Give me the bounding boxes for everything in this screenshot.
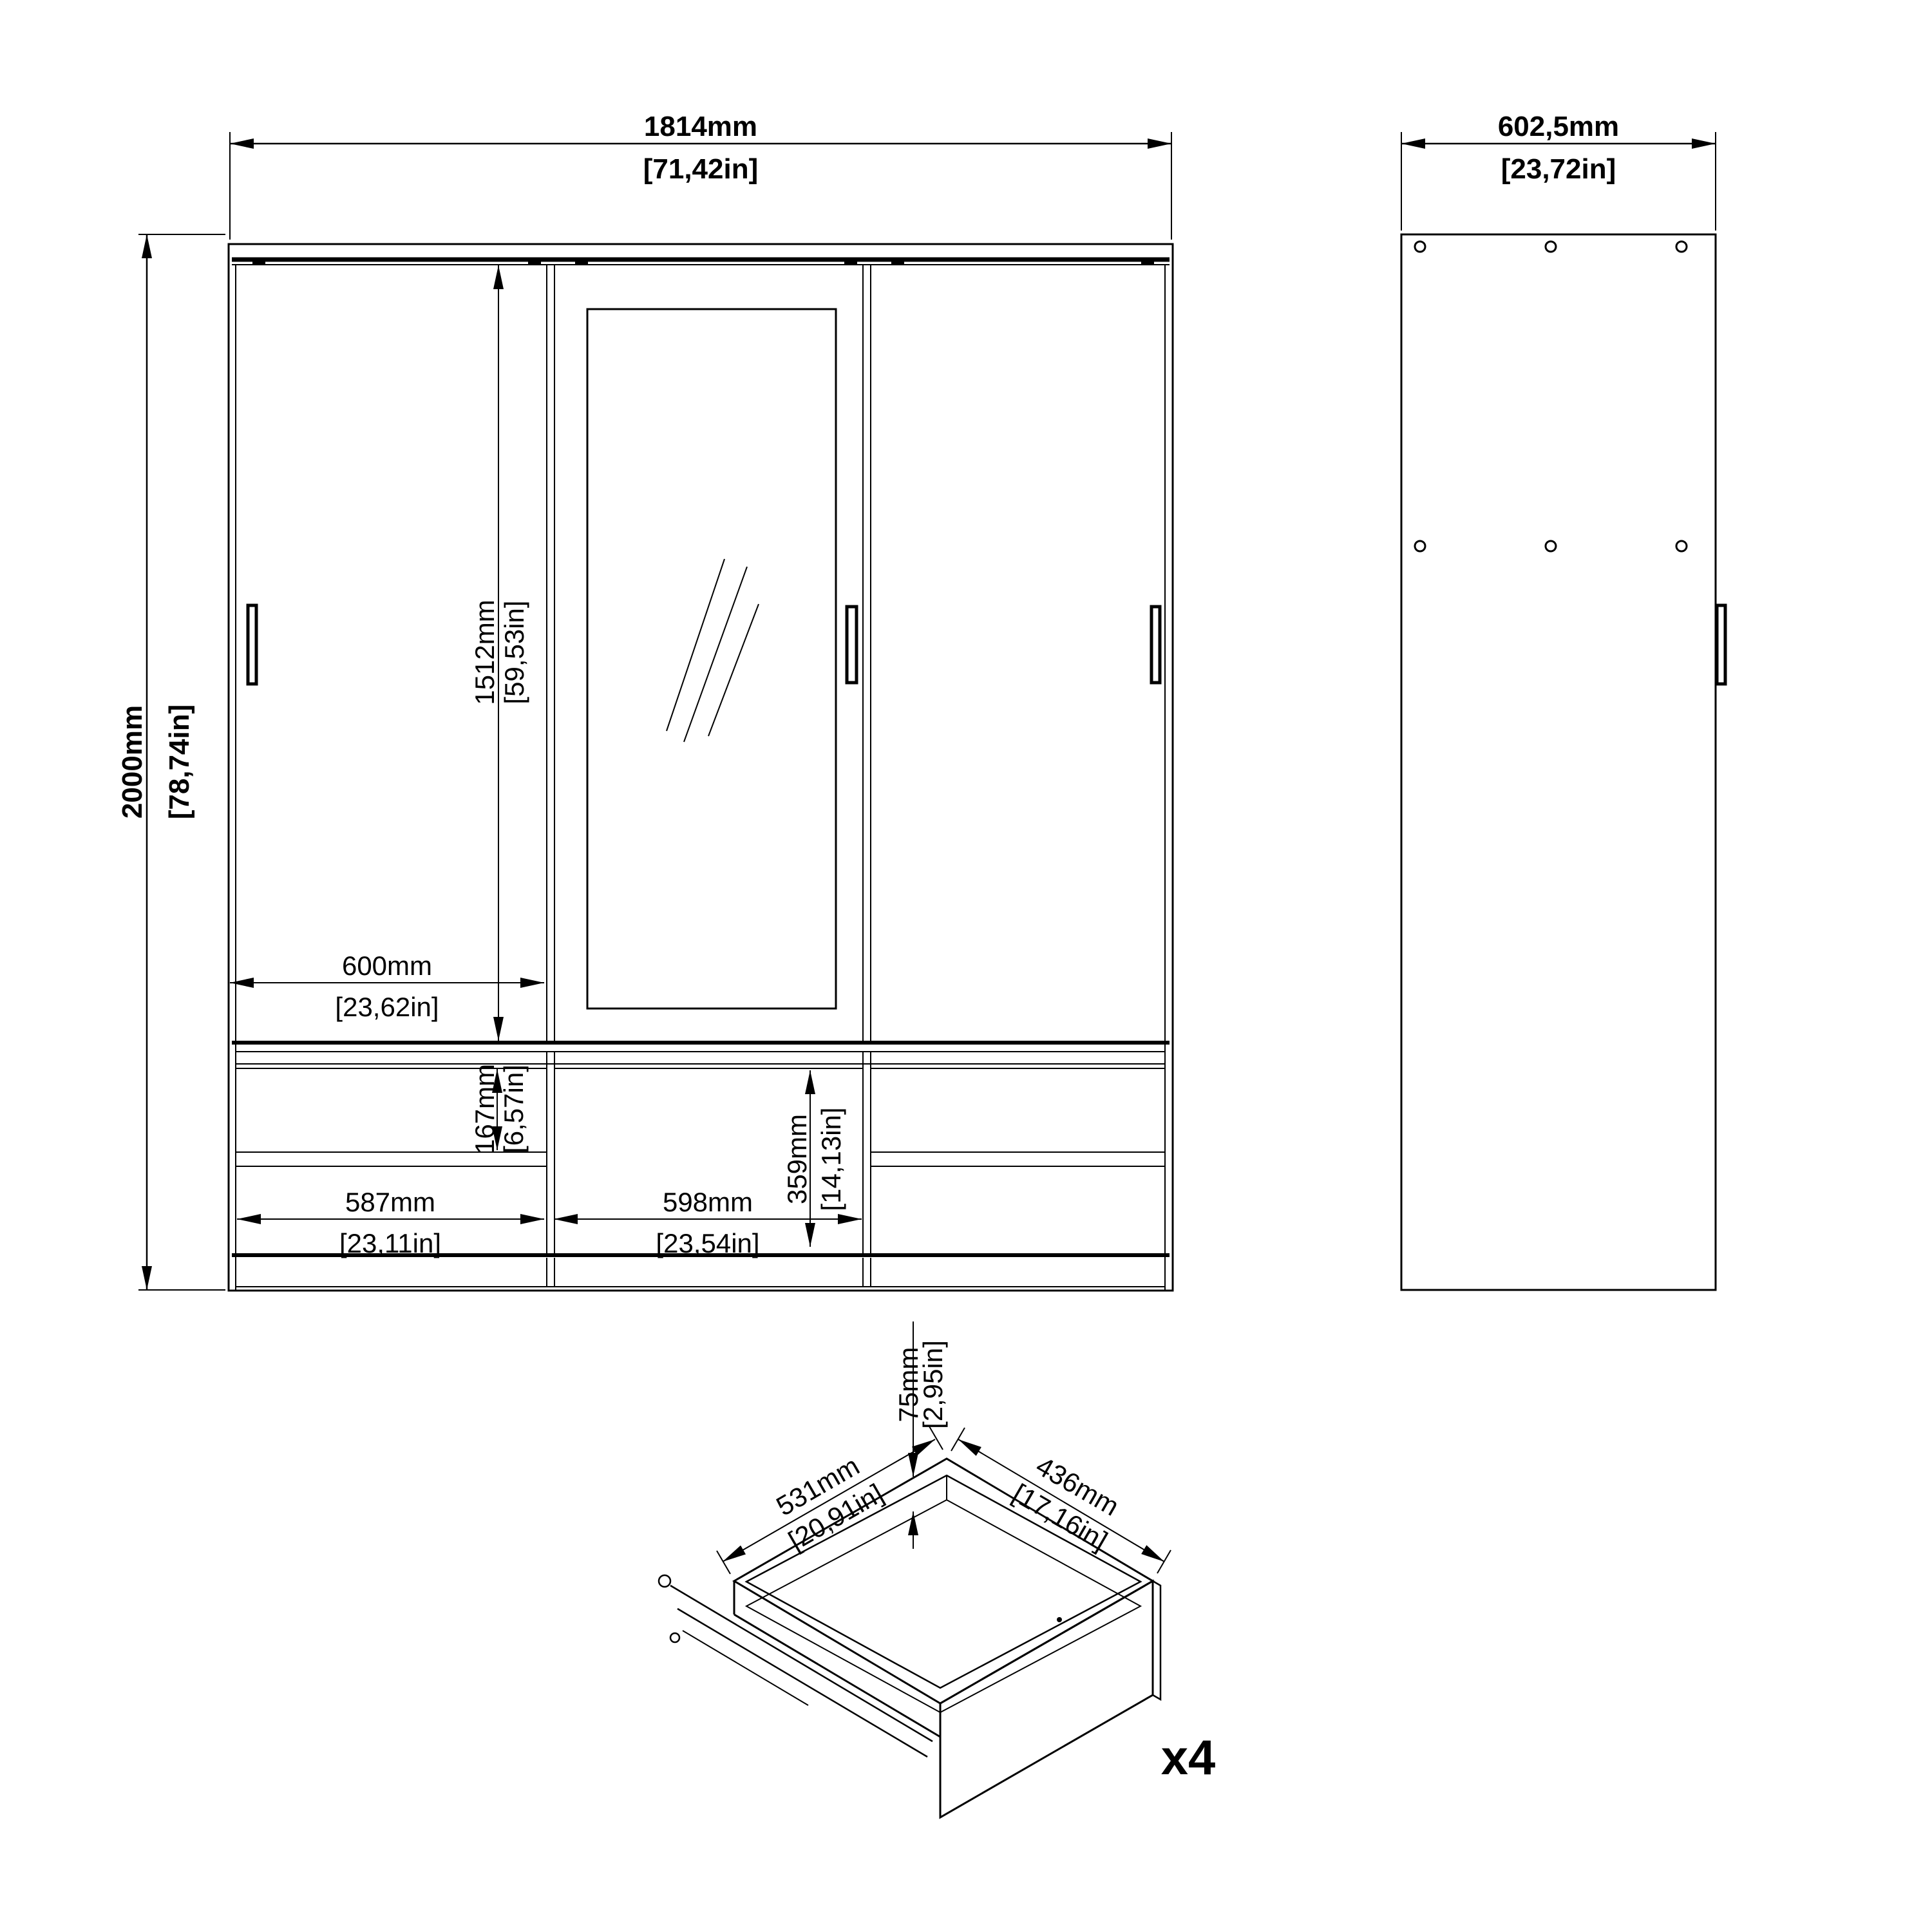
overall-width-mm-label: 1814mm: [644, 111, 757, 142]
side-screw-holes: [1415, 241, 1687, 551]
overall-width-in-label: [71,42in]: [643, 153, 759, 185]
top-drawer-height-mm-label: 167mm: [469, 1064, 500, 1154]
drawing-canvas: 1814mm [71,42in] 2000mm [78,74in] 1512mm…: [0, 0, 1932, 1932]
drawer-height-in-label: [2,95in]: [918, 1340, 948, 1429]
door-height-mm-label: 1512mm: [469, 600, 500, 705]
drawer-bottom-edge: [734, 1615, 940, 1737]
depth-mm-label: 602,5mm: [1498, 111, 1619, 142]
door-width-in-label: [23,62in]: [335, 992, 439, 1022]
mirror: [587, 309, 836, 1009]
overall-height-in-label: [78,74in]: [164, 705, 195, 820]
left-door-handle: [248, 605, 256, 684]
middle-drawer-width-mm-label: 598mm: [663, 1187, 753, 1217]
depth-in-label: [23,72in]: [1501, 153, 1616, 185]
mirror-shine-lines: [667, 559, 759, 742]
door-width-mm-label: 600mm: [342, 951, 432, 981]
front-dimensions: 1814mm [71,42in] 2000mm [78,74in] 1512mm…: [117, 111, 1171, 1290]
side-door-handle-profile: [1717, 605, 1725, 684]
front-view: [229, 244, 1173, 1291]
front-cabinet-outline: [229, 244, 1173, 1291]
middle-section-height-in-label: [14,13in]: [816, 1107, 846, 1211]
top-drawer-height-in-label: [6,57in]: [498, 1065, 529, 1153]
plinth-lines: [236, 1258, 1165, 1287]
door-height-in-label: [59,53in]: [499, 600, 529, 704]
right-drawer-stack: [871, 1068, 1165, 1166]
drawer-screw-hole: [1057, 1617, 1062, 1622]
drawer-slide-rails: [659, 1575, 933, 1757]
dim-drawer-width: [723, 1439, 935, 1562]
side-drawer-width-mm-label: 587mm: [345, 1187, 435, 1217]
side-cabinet-outline: [1401, 234, 1716, 1290]
drawer-detail: 75mm [2,95in] 531mm [20,91in] 436mm [17,…: [659, 1321, 1215, 1817]
side-view: 602,5mm [23,72in]: [1401, 111, 1725, 1290]
sliding-doors: [232, 265, 1170, 1043]
technical-drawing-page: 1814mm [71,42in] 2000mm [78,74in] 1512mm…: [0, 0, 1932, 1932]
right-door-handle: [1151, 607, 1160, 683]
overall-height-mm-label: 2000mm: [117, 705, 148, 819]
middle-drawer-width-in-label: [23,54in]: [656, 1228, 759, 1258]
drawer-quantity-label: x4: [1161, 1730, 1216, 1785]
drawer-front-panel-edge: [1153, 1581, 1160, 1700]
side-drawer-width-in-label: [23,11in]: [339, 1228, 441, 1258]
mirror-door-handle: [847, 607, 857, 683]
middle-section-height-mm-label: 359mm: [782, 1114, 812, 1204]
